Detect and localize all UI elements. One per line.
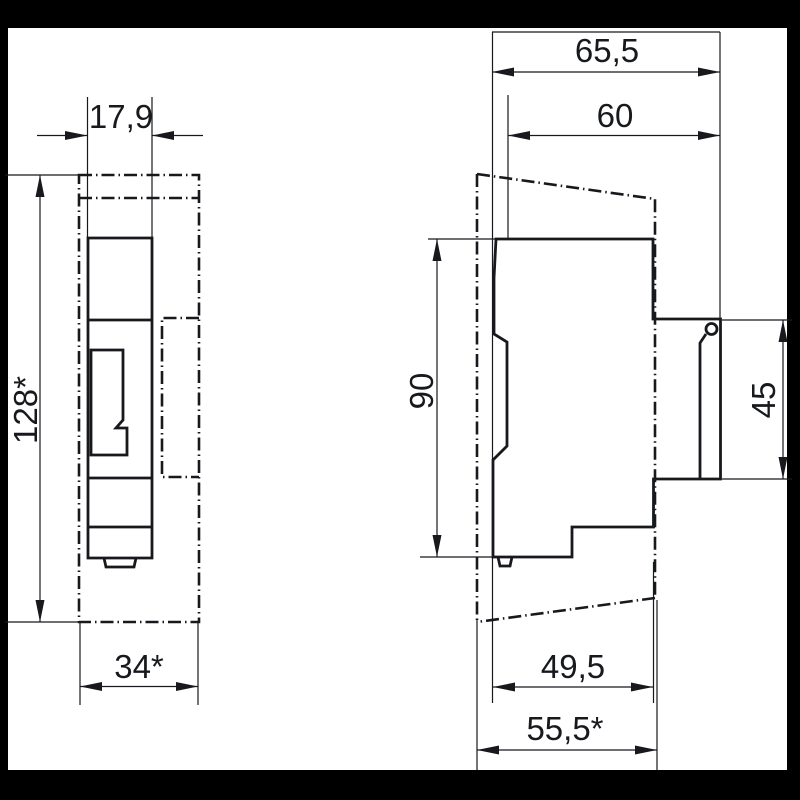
dim-label: 34* [114,648,164,685]
dim-label: 45 [745,382,782,419]
dim-label: 60 [597,97,634,134]
dim-label: 17,9 [89,98,153,135]
dim-label: 49,5 [541,648,605,685]
dim-label: 128* [7,376,44,444]
dim-label: 90 [403,373,440,410]
dim-label: 55,5* [526,710,603,747]
dimension-drawing: 17,9 128* 34* 65,5 60 90 [0,0,800,800]
dim-label: 65,5 [575,32,639,69]
